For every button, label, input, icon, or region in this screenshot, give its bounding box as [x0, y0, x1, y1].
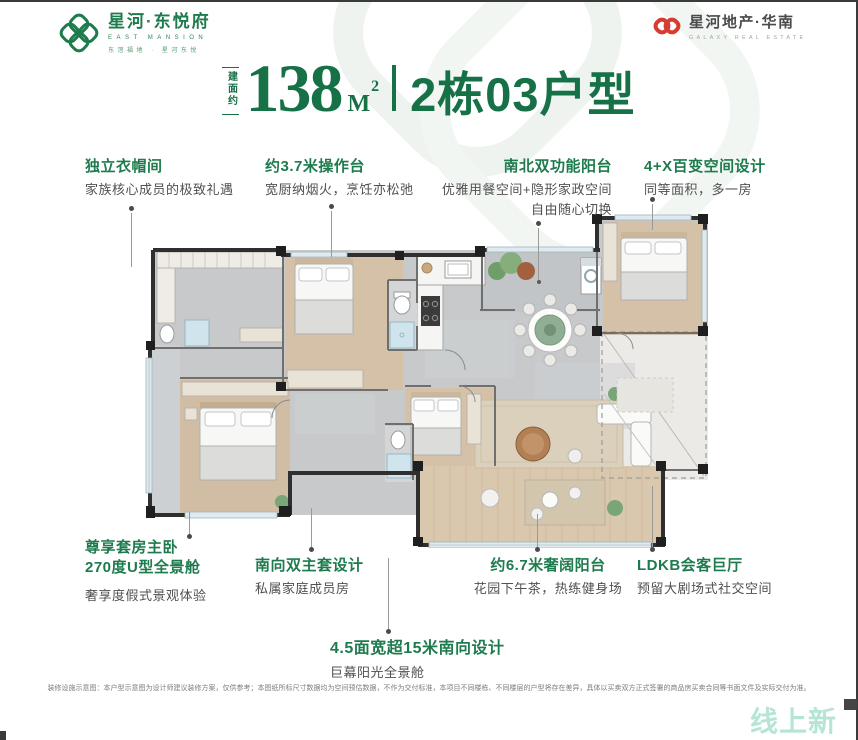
- title-unit-superscript: 2: [371, 78, 379, 95]
- callout-title: 约6.7米奢阔阳台: [458, 556, 638, 576]
- leader-dot: [386, 629, 391, 634]
- page-title: 建面约 138 M2 2栋03户型: [0, 56, 858, 121]
- callout-south-balcony: 约6.7米奢阔阳台 花园下午茶，热练健身场: [458, 556, 638, 599]
- title-area-unit: M2: [347, 91, 378, 118]
- leader-dot: [129, 206, 134, 211]
- floor-plan-illustration: [145, 208, 720, 548]
- callout-master-suite: 尊享套房主卧 270度U型全景舱 奢享度假式景观体验: [85, 538, 207, 605]
- brand-left: 星河·东悦府 EAST MANSION 东滘福地 · 星河东悦: [58, 12, 211, 54]
- leader-dot: [650, 547, 655, 552]
- brand-left-name: 星河·东悦府: [108, 12, 211, 32]
- title-unit-type: 2栋03户型: [410, 71, 635, 118]
- callout-title: 4+X百变空间设计: [644, 157, 766, 177]
- dining-table: [514, 294, 586, 366]
- callout-desc: 巨幕阳光全景舱: [330, 663, 505, 683]
- callout-desc: 花园下午茶，热练健身场: [458, 579, 638, 599]
- callout-north-south-balcony: 南北双功能阳台 优雅用餐空间+隐形家政空间 自由随心切换: [442, 157, 612, 219]
- callout-desc: 奢享度假式景观体验: [85, 586, 207, 606]
- leader-dot: [536, 221, 541, 226]
- callout-desc: 自由随心切换: [442, 200, 612, 220]
- leader-dot: [537, 280, 541, 284]
- leader-line: [652, 486, 653, 547]
- callout-title: 南北双功能阳台: [442, 157, 612, 177]
- floorplan-poster: 星河·东悦府 EAST MANSION 东滘福地 · 星河东悦 星河地产·华南 …: [0, 0, 858, 740]
- callout-title: 270度U型全景舱: [85, 558, 207, 578]
- callout-desc: 私属家庭成员房: [255, 579, 364, 599]
- callout-desc: 宽厨纳烟火，烹饪亦松弛: [265, 180, 414, 200]
- brand-right-name: 星河地产·华南: [689, 14, 806, 32]
- callout-desc: 同等面积，多一房: [644, 180, 766, 200]
- callout-cloakroom: 独立衣帽间 家族核心成员的极致礼遇: [85, 157, 234, 200]
- callout-title: 南向双主套设计: [255, 556, 364, 576]
- callout-title: 约3.7米操作台: [265, 157, 414, 177]
- leader-line: [189, 512, 190, 534]
- callout-south-width: 4.5面宽超15米南向设计 巨幕阳光全景舱: [330, 638, 505, 682]
- callout-desc: 家族核心成员的极致礼遇: [85, 180, 234, 200]
- galaxy-logo-icon: [652, 14, 682, 38]
- leader-line: [331, 211, 332, 257]
- leader-dot: [535, 547, 540, 552]
- brand-right-subtitle: GALAXY REAL ESTATE: [689, 35, 806, 41]
- leader-line: [388, 558, 389, 629]
- leader-dot: [309, 547, 314, 552]
- leader-line: [131, 213, 132, 267]
- disclaimer: 装修设施示意图：本户型示意图为设计师建议装修方案，仅供参考；本图纸所标尺寸数据均…: [0, 683, 858, 693]
- leader-line: [311, 508, 312, 547]
- callout-title: 尊享套房主卧: [85, 538, 207, 558]
- brand-right: 星河地产·华南 GALAXY REAL ESTATE: [652, 14, 806, 41]
- callout-kitchen-counter: 约3.7米操作台 宽厨纳烟火，烹饪亦松弛: [265, 157, 414, 200]
- brand-left-subtitle: EAST MANSION: [108, 35, 211, 41]
- watermark-logo: 线上新房: [750, 700, 858, 740]
- callout-ldkb-hall: LDKB会客巨厅 预留大剧场式社交空间: [637, 556, 772, 599]
- callout-desc: 优雅用餐空间+隐形家政空间: [442, 180, 612, 200]
- leader-dot: [329, 204, 334, 209]
- west-balcony: [150, 345, 180, 515]
- callout-title: LDKB会客巨厅: [637, 556, 772, 576]
- callout-desc: 预留大剧场式社交空间: [637, 579, 772, 599]
- callout-flex-space: 4+X百变空间设计 同等面积，多一房: [644, 157, 766, 200]
- knot-logo-icon: [58, 12, 100, 54]
- bathroom-middle: [388, 280, 417, 350]
- callout-south-suites: 南向双主套设计 私属家庭成员房: [255, 556, 364, 599]
- title-area-number: 138: [245, 56, 341, 121]
- callout-title: 4.5面宽超15米南向设计: [330, 638, 505, 660]
- title-prefix: 建面约: [222, 67, 239, 115]
- brand-left-tagline: 东滘福地 · 星河东悦: [108, 45, 211, 54]
- callout-title: 独立衣帽间: [85, 157, 234, 177]
- title-divider: [392, 65, 396, 111]
- leader-line: [537, 514, 538, 547]
- leader-line: [652, 204, 653, 230]
- leader-line: [538, 228, 539, 280]
